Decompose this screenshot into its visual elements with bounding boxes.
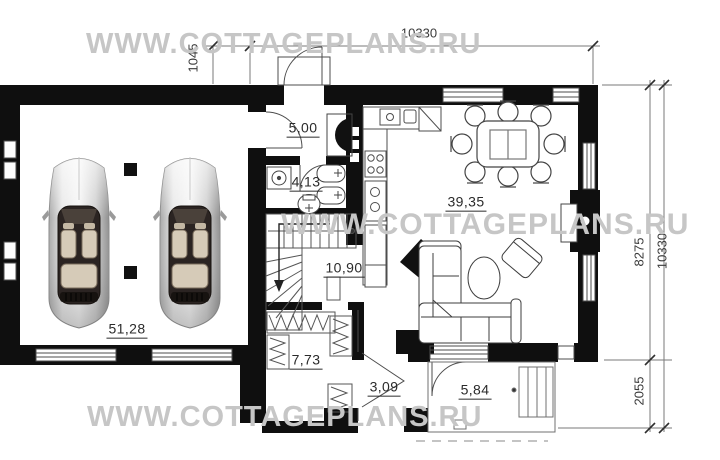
garage-column: [124, 266, 137, 279]
dining-set: [451, 101, 565, 187]
armchair: [500, 236, 544, 279]
room-area-porch: 5,84: [459, 383, 492, 400]
room-area-wardrobe: 7,73: [290, 353, 323, 370]
dimension-top-width: 10330: [401, 27, 437, 40]
coffee-table: [468, 257, 500, 299]
stove: [365, 151, 386, 177]
floor-plan-drawing: [0, 0, 720, 460]
boiler: [335, 118, 352, 152]
garage-contents: [42, 157, 227, 328]
porch-outline: [416, 362, 555, 441]
car-right: [153, 157, 227, 328]
dimension-porch-depth: 2055: [633, 377, 646, 406]
room-area-kitchen-living: 39,35: [445, 195, 486, 212]
garage-column: [124, 163, 137, 176]
porch-steps: [519, 367, 553, 417]
room-area-garage: 51,28: [106, 322, 147, 339]
dimension-porch-offset: 1045: [187, 44, 200, 73]
room-area-vestibule: 3,09: [368, 380, 401, 397]
dimension-total-depth: 10330: [656, 233, 669, 269]
car-left: [42, 157, 116, 328]
room-area-bathroom: 4,13: [290, 175, 323, 192]
dimension-house-depth: 8275: [633, 238, 646, 267]
tv-cabinet: [561, 204, 577, 242]
floor-plan-page: WWW.COTTAGEPLANS.RU WWW.COTTAGEPLANS.RU …: [0, 0, 720, 460]
room-area-stair-hall: 10,90: [323, 261, 364, 278]
room-area-hall: 5,00: [287, 121, 320, 138]
